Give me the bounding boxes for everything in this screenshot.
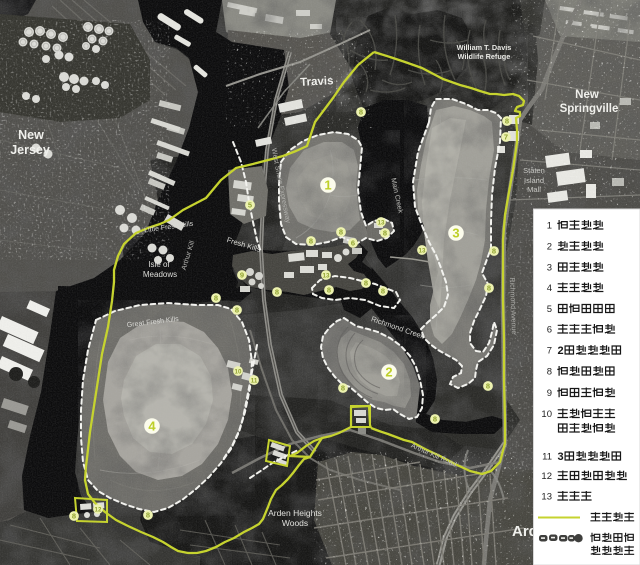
- svg-text:Island: Island: [524, 176, 544, 185]
- svg-text:New: New: [575, 89, 599, 101]
- svg-text:8: 8: [341, 384, 345, 393]
- svg-text:8: 8: [339, 228, 343, 237]
- svg-text:9: 9: [547, 388, 552, 399]
- svg-text:8: 8: [433, 415, 437, 424]
- svg-text:Travis: Travis: [300, 75, 334, 89]
- svg-text:Jersey: Jersey: [10, 143, 50, 157]
- svg-text:8: 8: [359, 108, 363, 117]
- svg-text:8: 8: [327, 286, 331, 295]
- svg-text:7: 7: [547, 345, 552, 356]
- svg-text:9: 9: [240, 271, 244, 280]
- svg-text:10: 10: [541, 409, 552, 420]
- svg-text:2: 2: [547, 241, 552, 252]
- svg-text:12: 12: [541, 471, 552, 482]
- svg-text:3: 3: [558, 451, 564, 463]
- svg-text:Mall: Mall: [527, 185, 541, 194]
- svg-text:12: 12: [95, 507, 102, 514]
- svg-text:New: New: [18, 128, 44, 142]
- svg-text:3: 3: [547, 262, 552, 273]
- svg-text:8: 8: [492, 247, 496, 256]
- svg-text:8: 8: [383, 229, 387, 238]
- svg-text:8: 8: [487, 284, 491, 293]
- svg-text:Arden Heights: Arden Heights: [268, 508, 322, 518]
- svg-text:Woods: Woods: [282, 518, 308, 528]
- svg-text:Meadows: Meadows: [143, 270, 177, 279]
- svg-text:8: 8: [381, 287, 385, 296]
- svg-text:8: 8: [275, 288, 279, 297]
- svg-text:6: 6: [351, 239, 355, 248]
- svg-text:3: 3: [452, 226, 459, 241]
- svg-text:8: 8: [309, 237, 313, 246]
- svg-text:2: 2: [385, 365, 392, 380]
- svg-text:8: 8: [505, 117, 509, 126]
- svg-text:10: 10: [235, 369, 242, 376]
- svg-text:13: 13: [541, 491, 552, 502]
- svg-text:Isle of: Isle of: [148, 260, 170, 269]
- svg-text:13: 13: [419, 248, 426, 255]
- svg-text:1: 1: [324, 178, 331, 193]
- svg-text:11: 11: [251, 378, 258, 385]
- svg-text:7: 7: [504, 133, 508, 142]
- svg-text:6: 6: [547, 324, 552, 335]
- svg-text:8: 8: [235, 306, 239, 315]
- svg-text:13: 13: [378, 220, 385, 227]
- svg-text:5: 5: [248, 201, 252, 210]
- svg-text:4: 4: [148, 419, 156, 434]
- svg-text:1: 1: [547, 220, 552, 231]
- svg-text:5: 5: [547, 304, 552, 315]
- svg-text:8: 8: [364, 279, 368, 288]
- svg-text:Wildlife Refuge: Wildlife Refuge: [458, 52, 511, 61]
- svg-text:William T. Davis: William T. Davis: [457, 43, 512, 52]
- svg-text:8: 8: [547, 366, 552, 377]
- svg-text:8: 8: [72, 512, 76, 521]
- svg-text:2: 2: [558, 345, 564, 357]
- svg-text:8: 8: [146, 511, 150, 520]
- svg-text:Springville: Springville: [560, 103, 619, 115]
- svg-text:11: 11: [542, 451, 552, 462]
- svg-text:4: 4: [547, 283, 552, 294]
- svg-text:8: 8: [486, 382, 490, 391]
- svg-text:Staten: Staten: [523, 166, 545, 175]
- svg-text:13: 13: [323, 273, 330, 280]
- svg-text:8: 8: [214, 294, 218, 303]
